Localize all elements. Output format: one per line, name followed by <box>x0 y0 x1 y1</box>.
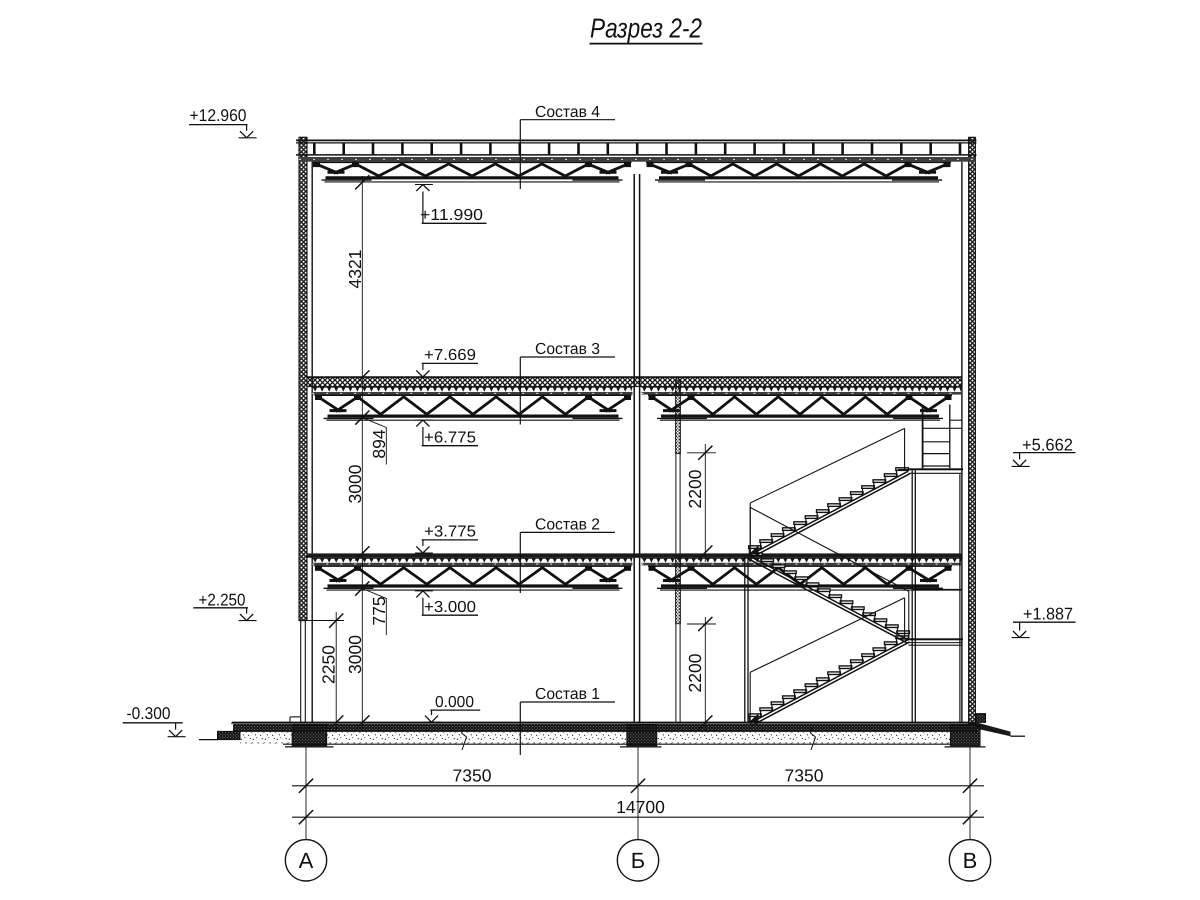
svg-text:Б: Б <box>631 848 645 873</box>
svg-text:+3.000: +3.000 <box>424 599 476 616</box>
svg-text:Разрез 2-2: Разрез 2-2 <box>590 13 702 44</box>
svg-text:+5.662: +5.662 <box>1022 435 1073 454</box>
svg-text:А: А <box>299 848 314 873</box>
svg-text:775: 775 <box>369 596 389 625</box>
svg-text:+6.775: +6.775 <box>424 430 476 447</box>
svg-text:-0.300: -0.300 <box>127 704 171 723</box>
svg-text:Состав 3: Состав 3 <box>535 341 600 358</box>
svg-text:14700: 14700 <box>616 797 665 817</box>
svg-text:3000: 3000 <box>345 464 365 503</box>
svg-text:+1.887: +1.887 <box>1023 604 1073 623</box>
svg-text:2200: 2200 <box>685 469 705 508</box>
svg-text:894: 894 <box>369 429 389 458</box>
svg-text:7350: 7350 <box>453 765 492 785</box>
svg-text:Состав 4: Состав 4 <box>535 104 600 121</box>
svg-text:Состав 1: Состав 1 <box>535 686 600 703</box>
svg-text:+11.990: +11.990 <box>420 207 483 224</box>
svg-text:0.000: 0.000 <box>435 694 474 711</box>
svg-text:3000: 3000 <box>345 635 365 674</box>
svg-text:2250: 2250 <box>319 645 339 684</box>
svg-text:+12.960: +12.960 <box>190 106 247 125</box>
svg-text:7350: 7350 <box>785 765 824 785</box>
svg-text:4321: 4321 <box>345 250 365 289</box>
svg-text:В: В <box>963 848 978 873</box>
svg-text:2200: 2200 <box>685 653 705 692</box>
svg-text:+2.250: +2.250 <box>199 590 246 609</box>
svg-text:Состав 2: Состав 2 <box>535 517 600 534</box>
svg-text:+3.775: +3.775 <box>424 523 476 540</box>
svg-text:+7.669: +7.669 <box>424 347 476 364</box>
